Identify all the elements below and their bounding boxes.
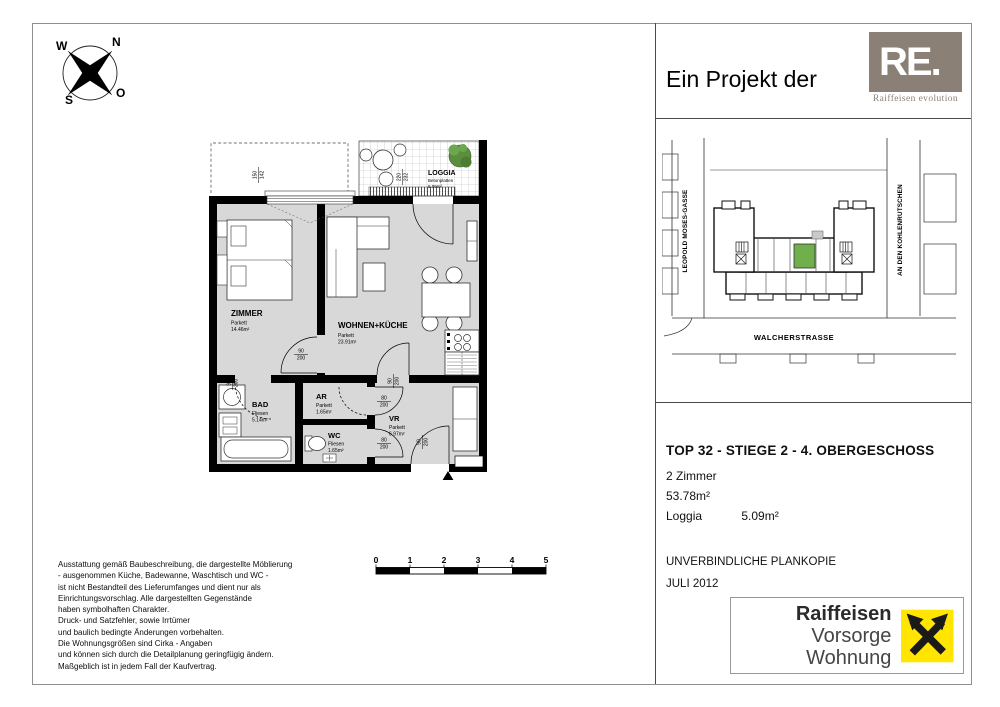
svg-text:220: 220 (397, 173, 403, 182)
svg-text:90: 90 (417, 439, 423, 445)
loggia-row: Loggia 5.09m² (666, 509, 779, 523)
loggia-row-label: Loggia (666, 509, 738, 523)
scale-bar: 0 1 2 3 4 5 (368, 554, 553, 580)
svg-text:200: 200 (380, 445, 389, 451)
street-right-label: AN DEN KOHLENRUTSCHEN (897, 184, 904, 276)
svg-text:23.91m²: 23.91m² (338, 340, 357, 346)
sitemap-divider (656, 402, 971, 403)
svg-text:Parkett: Parkett (231, 321, 247, 327)
brand-subtitle: Vorsorge Wohnung (731, 625, 891, 669)
total-area: 53.78m² (666, 489, 710, 503)
window-dim: 150 142 (253, 167, 266, 183)
svg-text:200: 200 (395, 377, 401, 386)
rooms-count: 2 Zimmer (666, 469, 717, 483)
loggia-row-area: 5.09m² (741, 509, 778, 523)
svg-text:90: 90 (388, 378, 394, 384)
compass-o: O (116, 86, 125, 100)
toilet-icon (305, 436, 326, 451)
loggia-grate (369, 187, 455, 196)
washbasin-icon (219, 385, 245, 409)
svg-text:200: 200 (234, 379, 240, 388)
street-bottom-label: WALCHERSTRASSE (754, 333, 834, 342)
svg-text:142: 142 (260, 171, 266, 180)
svg-text:Fliesen: Fliesen (328, 442, 344, 448)
svg-text:80: 80 (381, 396, 387, 402)
vr-label: VR (389, 414, 400, 423)
washing-machine-icon (219, 413, 241, 437)
bathtub-icon (221, 437, 291, 461)
loggia-floor: Betonplatten (428, 178, 454, 183)
nightstand-icon (217, 221, 227, 237)
compass-rose-icon: N W S O (46, 24, 156, 124)
tv-board-icon (467, 221, 477, 261)
compass-n: N (112, 35, 121, 49)
svg-text:1.65m²: 1.65m² (328, 448, 344, 454)
unit-title: TOP 32 - STIEGE 2 - 4. OBERGESCHOSS (666, 443, 934, 458)
panel-divider (655, 23, 656, 684)
re-logo: RE. (869, 32, 962, 92)
projection-dashed-line (211, 143, 348, 193)
svg-text:3: 3 (476, 555, 481, 565)
svg-text:90: 90 (227, 380, 233, 386)
floor-drain-icon (323, 454, 336, 462)
site-map: LEOPOLD MOSES-GASSE AN DEN KOHLENRUTSCHE… (662, 126, 967, 396)
zimmer-label: ZIMMER (231, 309, 263, 318)
building-footprint (714, 201, 874, 300)
loggia-label: LOGGIA (428, 170, 456, 177)
entrance-arrow-icon (439, 471, 457, 480)
svg-text:1: 1 (408, 555, 413, 565)
closet-icon (453, 387, 477, 451)
svg-text:6.97m²: 6.97m² (389, 432, 405, 438)
disclaimer-text: Ausstattung gemäß Baubeschreibung, die d… (58, 559, 338, 672)
svg-text:200: 200 (424, 438, 430, 447)
ar-label: AR (316, 392, 327, 401)
svg-text:2: 2 (442, 555, 447, 565)
svg-text:1.65m²: 1.65m² (316, 410, 332, 416)
floor-plan: LOGGIA Betonplatten 5.09m² 220 232 (195, 135, 495, 480)
radiator-icon (217, 255, 227, 285)
header-divider (656, 118, 971, 119)
wall-niche (455, 456, 483, 467)
re-logo-caption: Raiffeisen evolution (866, 94, 965, 104)
brand-name: Raiffeisen (731, 603, 891, 625)
raiffeisen-brand-box: Raiffeisen Vorsorge Wohnung (730, 597, 964, 674)
compass-w: W (56, 39, 68, 53)
loggia-area-value: 5.09m² (428, 184, 443, 189)
svg-text:232: 232 (404, 173, 410, 182)
svg-text:200: 200 (297, 356, 306, 362)
coffee-table-icon (363, 263, 385, 291)
svg-text:Parkett: Parkett (338, 333, 354, 339)
bad-label: BAD (252, 400, 269, 409)
kitchen-counter-icon (445, 330, 479, 375)
project-of-text: Ein Projekt der (666, 66, 817, 93)
wc-label: WC (328, 431, 341, 440)
svg-text:Fliesen: Fliesen (252, 411, 268, 417)
building-stub (812, 231, 823, 239)
svg-text:4: 4 (510, 555, 515, 565)
compass-s: S (65, 93, 73, 107)
svg-text:Parkett: Parkett (316, 403, 332, 409)
svg-text:Parkett: Parkett (389, 425, 405, 431)
svg-text:14.46m²: 14.46m² (231, 327, 250, 333)
plan-copy-note: UNVERBINDLICHE PLANKOPIE (666, 556, 836, 568)
bed-icon (227, 220, 292, 300)
loggia-area: LOGGIA Betonplatten 5.09m² 220 232 (359, 141, 479, 196)
raiffeisen-cross-icon (901, 608, 954, 664)
svg-text:0: 0 (374, 555, 379, 565)
highlighted-unit (794, 244, 815, 268)
svg-text:5: 5 (544, 555, 549, 565)
plan-date: JULI 2012 (666, 578, 718, 590)
plan-sheet: N W S O (0, 0, 1000, 707)
svg-text:150: 150 (253, 171, 259, 180)
svg-text:90: 90 (298, 349, 304, 355)
svg-text:200: 200 (380, 403, 389, 409)
street-left-label: LEOPOLD MOSES-GASSE (682, 190, 689, 273)
re-logo-text: RE. (869, 40, 940, 85)
svg-text:80: 80 (381, 438, 387, 444)
wohnen-label: WOHNEN+KÜCHE (338, 321, 408, 330)
svg-text:5.14m²: 5.14m² (252, 418, 268, 424)
